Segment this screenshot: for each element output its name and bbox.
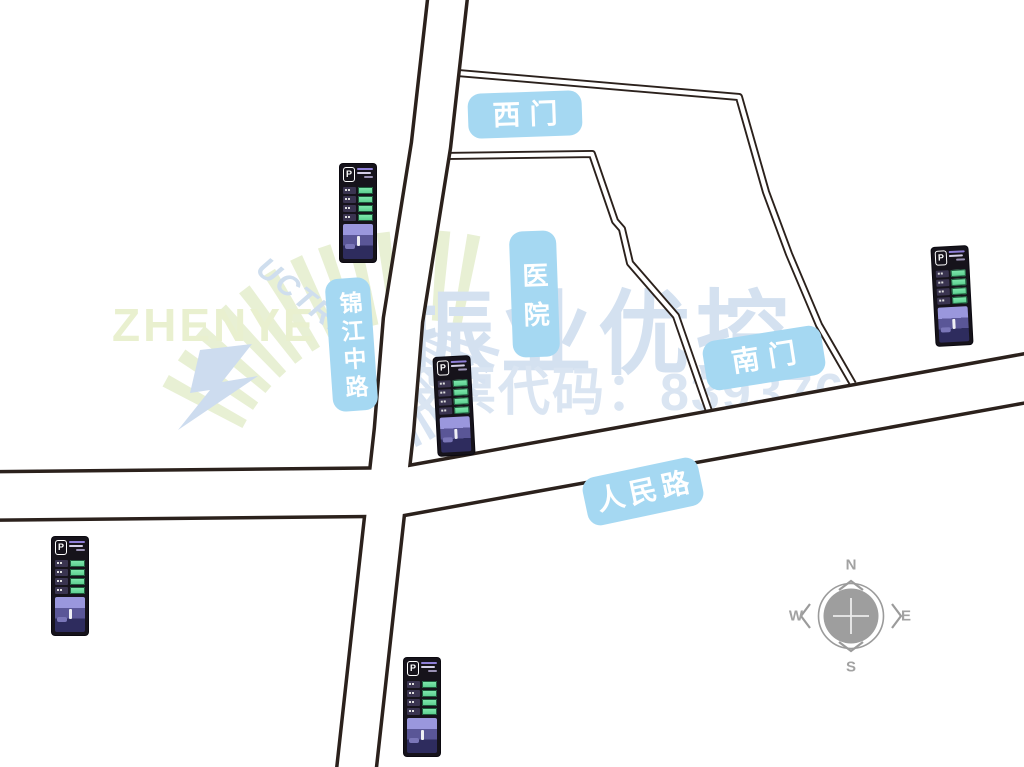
renmin-road-fill bbox=[0, 377, 1024, 496]
parking-sign-row bbox=[407, 690, 437, 697]
parking-sign-row bbox=[55, 569, 85, 576]
parking-sign: P bbox=[931, 246, 972, 346]
compass-west-label: W bbox=[789, 608, 803, 625]
parking-sign: P bbox=[433, 356, 474, 456]
parking-sign-screen bbox=[440, 416, 472, 453]
parking-zone-label bbox=[937, 288, 950, 296]
parking-count-led bbox=[453, 388, 468, 396]
parking-zone-label bbox=[55, 560, 68, 567]
parking-zone-label bbox=[936, 279, 949, 287]
parking-count-led bbox=[454, 406, 469, 414]
parking-sign-row bbox=[343, 196, 373, 203]
parking-zone-label bbox=[55, 587, 68, 594]
parking-zone-label bbox=[55, 578, 68, 585]
parking-zone-label bbox=[343, 196, 356, 203]
parking-count-led bbox=[422, 699, 437, 706]
parking-sign-row bbox=[343, 214, 373, 221]
parking-count-led bbox=[70, 587, 85, 594]
parking-sign-row bbox=[439, 397, 469, 406]
parking-sign-row bbox=[937, 287, 967, 296]
parking-count-led bbox=[70, 560, 85, 567]
parking-sign-header: P bbox=[407, 661, 437, 679]
compass-north-label: N bbox=[846, 557, 857, 574]
parking-zone-label bbox=[407, 708, 420, 715]
parking-sign-row bbox=[55, 587, 85, 594]
parking-zone-label bbox=[343, 214, 356, 221]
parking-count-led bbox=[70, 578, 85, 585]
parking-zone-label bbox=[55, 569, 68, 576]
compass-rose: N W E S bbox=[760, 530, 940, 700]
parking-p-icon: P bbox=[437, 360, 450, 376]
parking-sign-row bbox=[438, 379, 468, 388]
parking-sign-row bbox=[55, 560, 85, 567]
parking-count-led bbox=[454, 397, 469, 405]
parking-p-icon: P bbox=[343, 167, 355, 182]
map-canvas: ZHENYE UCTRL 振业优控 股票代码：839376 西门 医院 南门 锦… bbox=[0, 0, 1024, 767]
parking-count-led bbox=[951, 269, 966, 277]
parking-sign-screen bbox=[55, 597, 85, 632]
parking-zone-label bbox=[937, 297, 950, 305]
parking-sign-title-bars bbox=[421, 661, 437, 672]
parking-sign-row bbox=[407, 699, 437, 706]
parking-count-led bbox=[358, 196, 373, 203]
parking-sign-row bbox=[439, 406, 469, 415]
label-hospital: 医院 bbox=[509, 230, 560, 358]
compass-east-chevron-icon bbox=[892, 604, 901, 628]
parking-sign-row bbox=[407, 708, 437, 715]
parking-sign-row bbox=[937, 296, 967, 305]
parking-zone-label bbox=[407, 690, 420, 697]
parking-zone-label bbox=[439, 398, 452, 406]
parking-zone-label bbox=[438, 389, 451, 397]
parking-zone-label bbox=[439, 407, 452, 415]
parking-sign: P bbox=[52, 537, 88, 635]
parking-p-icon: P bbox=[407, 661, 419, 676]
parking-sign-title-bars bbox=[69, 540, 85, 551]
parking-sign-header: P bbox=[935, 249, 966, 269]
parking-count-led bbox=[952, 287, 967, 295]
parking-count-led bbox=[422, 681, 437, 688]
parking-count-led bbox=[358, 214, 373, 221]
parking-sign-row bbox=[407, 681, 437, 688]
parking-sign-row bbox=[343, 187, 373, 194]
parking-count-led bbox=[422, 690, 437, 697]
parking-zone-label bbox=[407, 681, 420, 688]
parking-sign-row bbox=[936, 269, 966, 278]
label-west-gate: 西门 bbox=[467, 90, 583, 139]
parking-sign: P bbox=[404, 658, 440, 756]
compass-east-label: E bbox=[901, 608, 911, 625]
parking-sign-header: P bbox=[55, 540, 85, 558]
parking-count-led bbox=[952, 296, 967, 304]
parking-sign-title-bars bbox=[949, 249, 966, 261]
parking-zone-label bbox=[936, 270, 949, 278]
parking-count-led bbox=[453, 379, 468, 387]
parking-sign-header: P bbox=[343, 167, 373, 185]
parking-sign-screen bbox=[938, 306, 970, 343]
parking-p-icon: P bbox=[55, 540, 67, 555]
parking-sign: P bbox=[340, 164, 376, 262]
parking-sign-title-bars bbox=[357, 167, 373, 178]
parking-sign-row bbox=[343, 205, 373, 212]
parking-count-led bbox=[358, 187, 373, 194]
parking-sign-screen bbox=[407, 718, 437, 753]
parking-count-led bbox=[70, 569, 85, 576]
parking-zone-label bbox=[343, 205, 356, 212]
parking-sign-title-bars bbox=[451, 359, 468, 371]
parking-sign-screen bbox=[343, 224, 373, 259]
parking-count-led bbox=[951, 278, 966, 286]
parking-count-led bbox=[422, 708, 437, 715]
parking-zone-label bbox=[438, 380, 451, 388]
parking-sign-row bbox=[438, 388, 468, 397]
parking-p-icon: P bbox=[935, 250, 948, 266]
parking-sign-row bbox=[936, 278, 966, 287]
parking-sign-header: P bbox=[437, 359, 468, 379]
compass-south-label: S bbox=[846, 659, 856, 676]
parking-sign-row bbox=[55, 578, 85, 585]
parking-zone-label bbox=[407, 699, 420, 706]
label-jinjiang-middle-road: 锦江中路 bbox=[324, 277, 378, 413]
parking-count-led bbox=[358, 205, 373, 212]
parking-zone-label bbox=[343, 187, 356, 194]
